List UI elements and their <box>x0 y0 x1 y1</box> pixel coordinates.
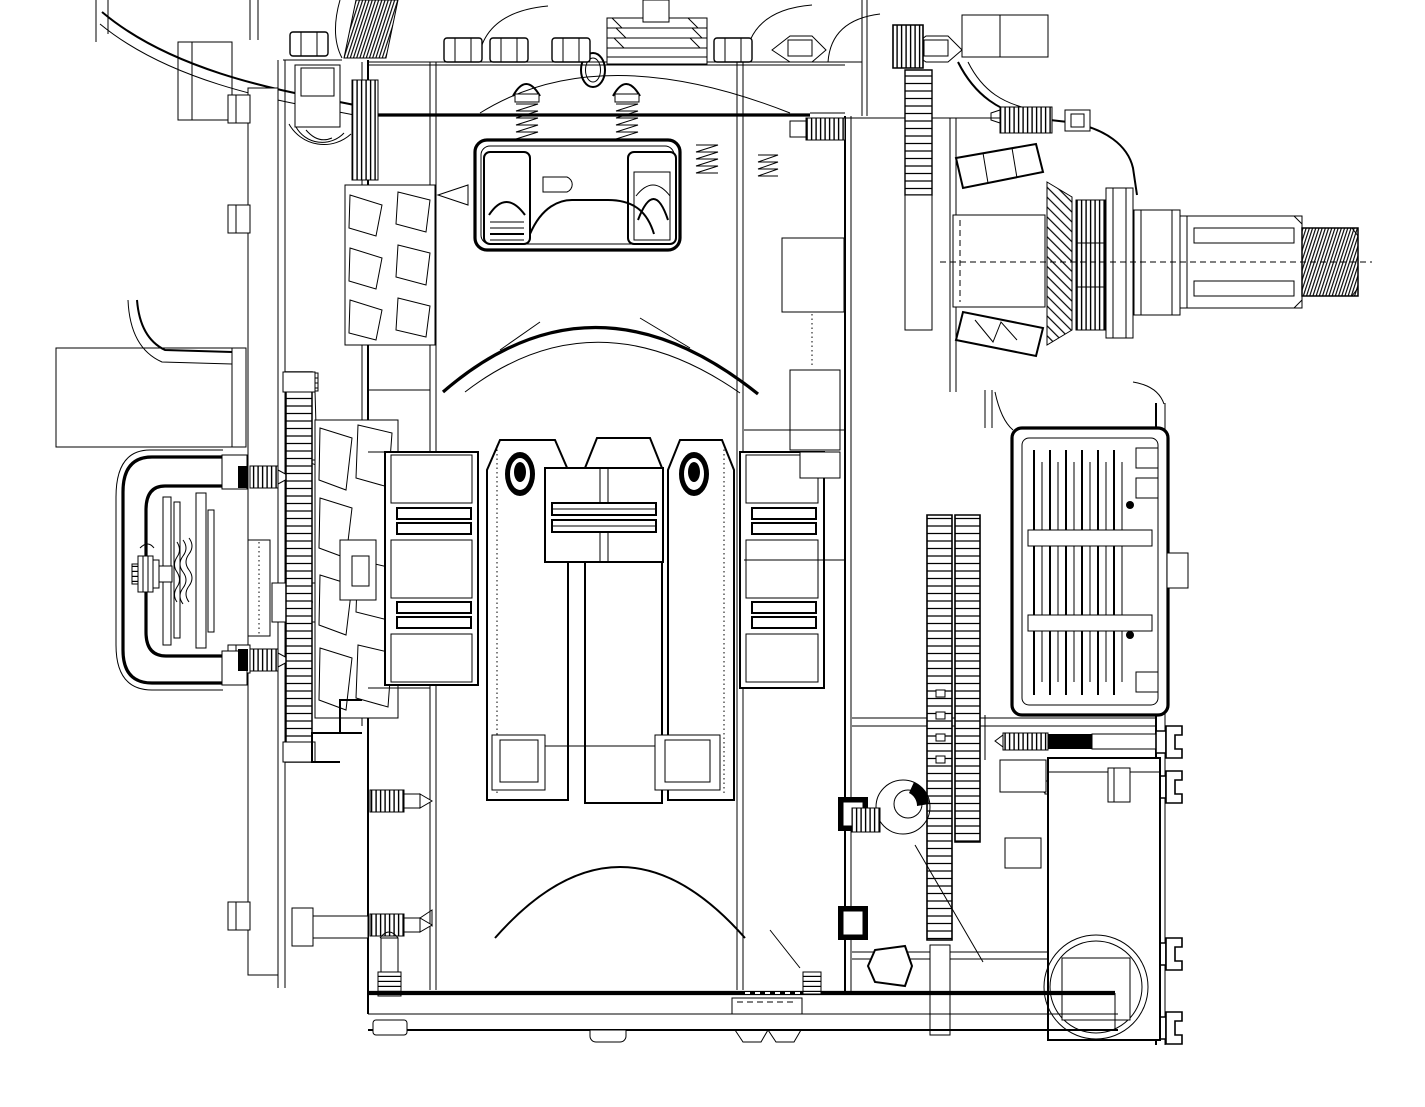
pan-foot <box>590 1030 626 1042</box>
clutch-rivet <box>1126 501 1134 509</box>
camshaft-plug <box>893 25 923 68</box>
main-bearing-block-left <box>385 452 478 685</box>
idler-gear-b <box>955 515 980 842</box>
crank-pin-left <box>505 452 535 496</box>
crank-pin-right <box>679 452 709 496</box>
bevel-gear-teeth <box>1047 182 1072 345</box>
spline-coupling <box>1076 200 1105 330</box>
bore-square-insert <box>1062 958 1130 1020</box>
pto-clutch-pack <box>995 382 1188 715</box>
cam-gear-column <box>283 372 315 762</box>
engine-cross-section-page <box>0 0 1425 1107</box>
housing-tab <box>1167 553 1188 588</box>
oil-plug-bolt <box>1000 107 1052 133</box>
fan-rotor-upper <box>345 185 435 345</box>
flange-stub-bolt <box>228 95 250 123</box>
bevel-pinion-hub <box>953 215 1045 307</box>
center-main-bearing <box>545 468 663 562</box>
idler-gear-a <box>927 515 952 940</box>
engine-cross-section-drawing <box>0 0 1425 1107</box>
clutch-rivet <box>1126 631 1134 639</box>
main-bearing-block-right <box>740 452 824 688</box>
cover-stud <box>352 80 378 180</box>
pan-foot <box>373 1020 407 1035</box>
